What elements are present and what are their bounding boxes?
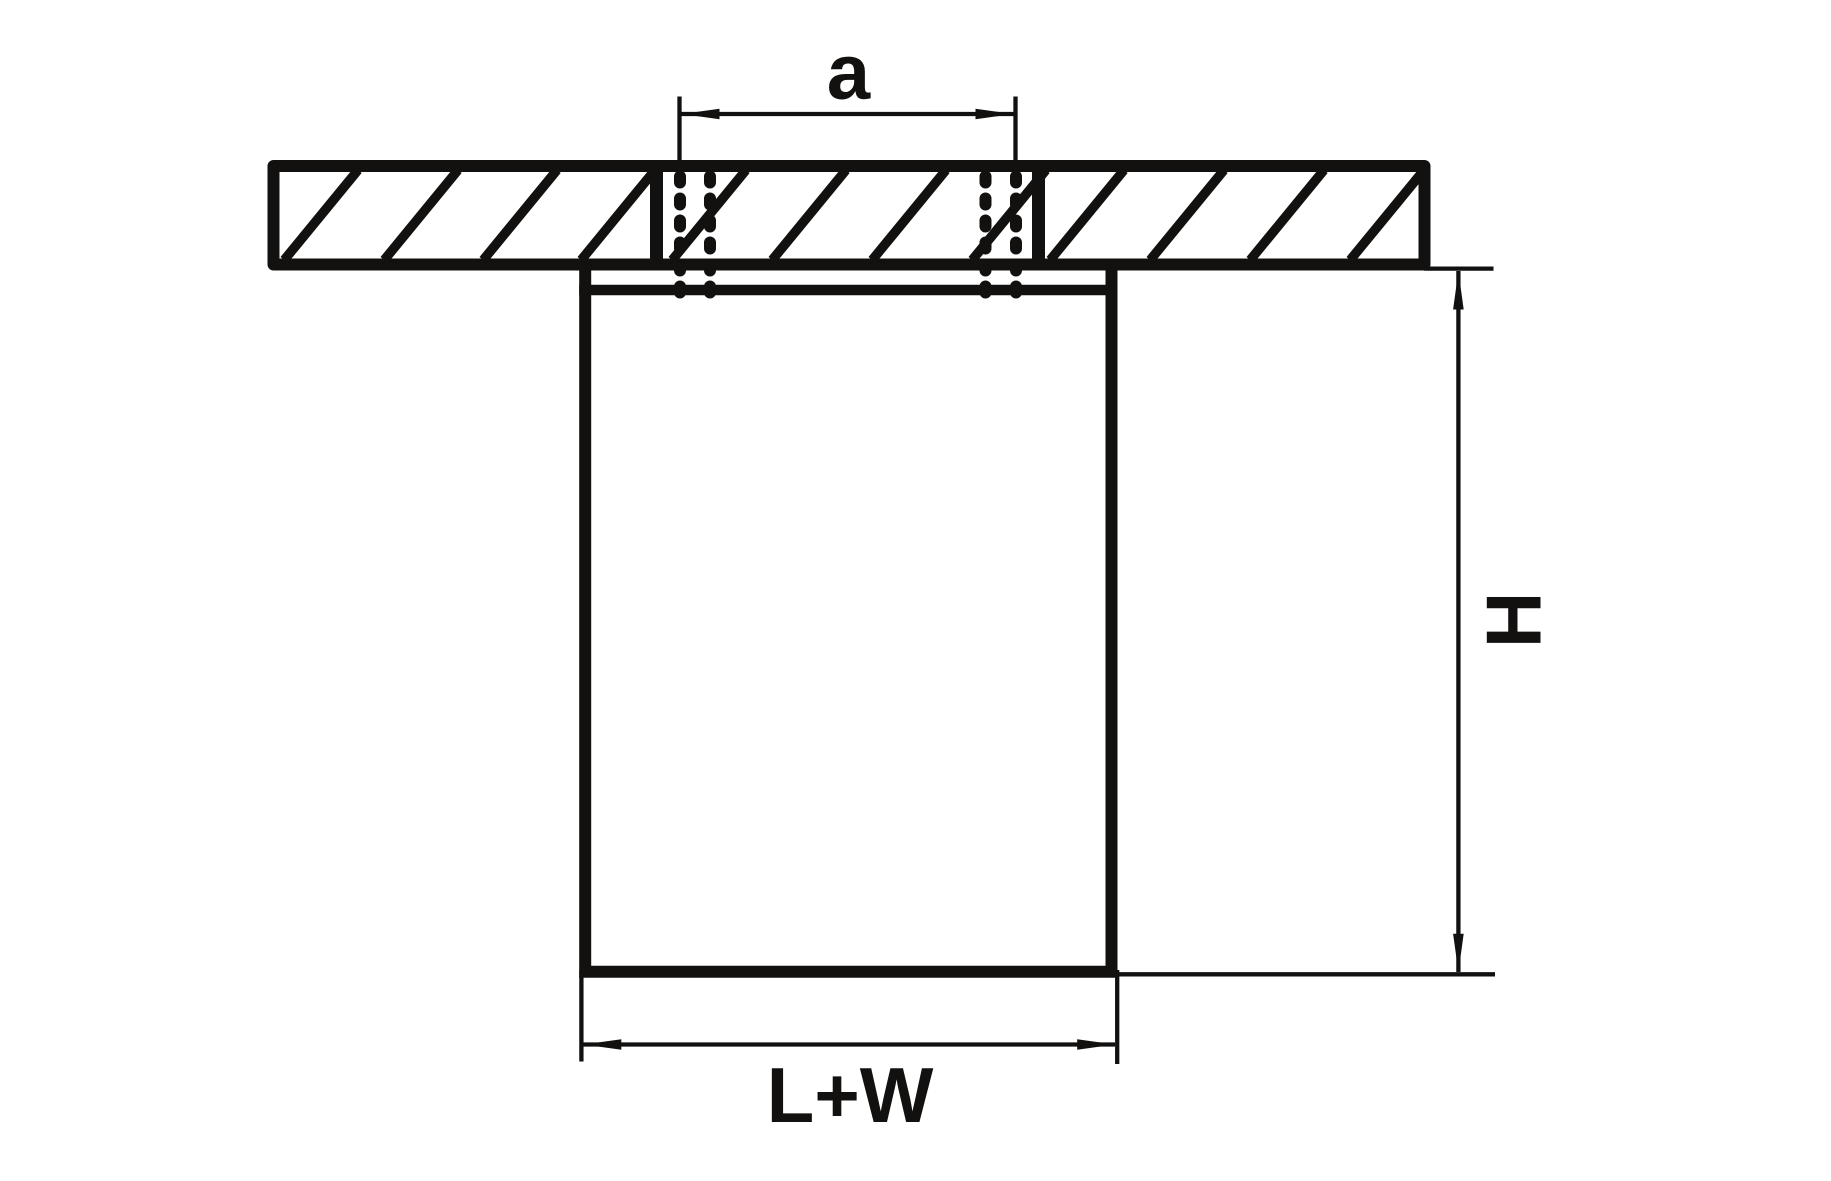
svg-text:L+W: L+W: [767, 1051, 934, 1139]
svg-text:a: a: [827, 28, 871, 116]
svg-text:H: H: [1470, 592, 1558, 648]
